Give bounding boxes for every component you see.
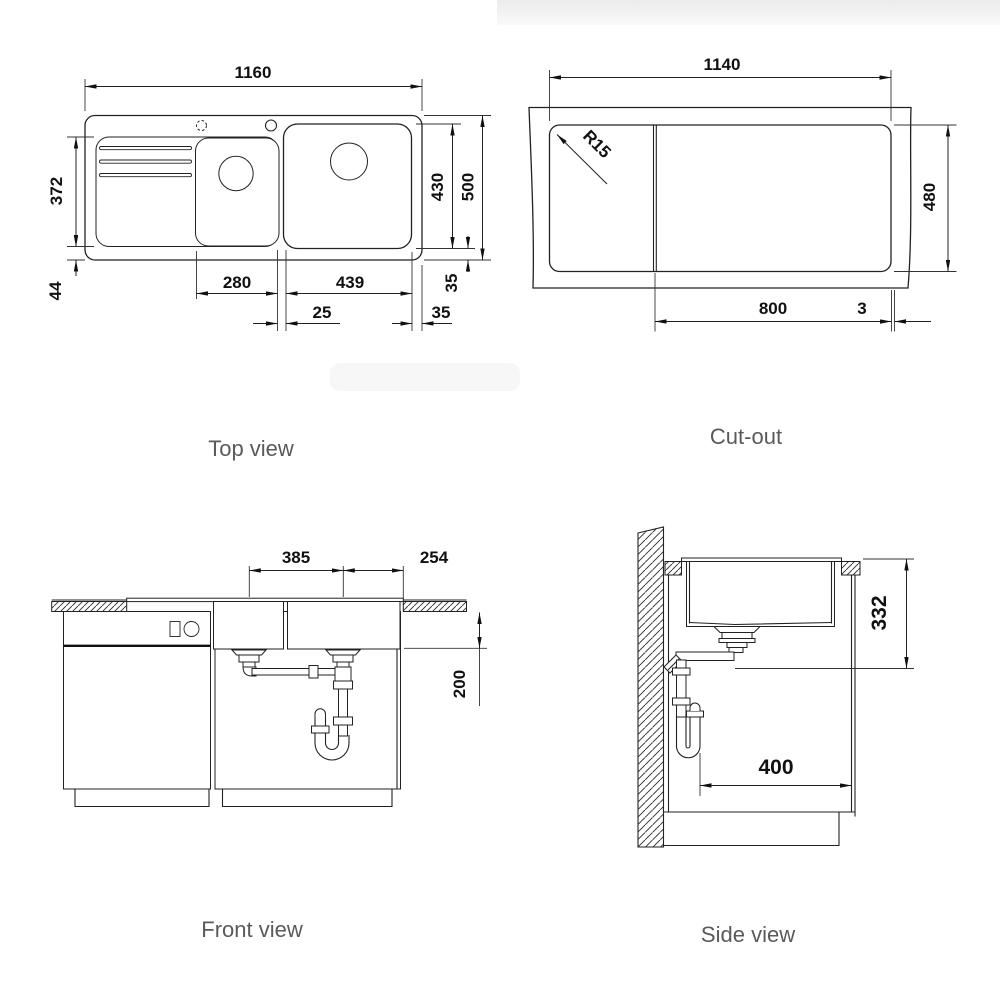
wall-section xyxy=(638,527,664,847)
scan-gray-band xyxy=(497,0,1000,25)
dim-cutout-width: 1140 xyxy=(704,55,741,74)
left-cabinet-plinth xyxy=(75,789,209,807)
side-view: 332 400 Side view xyxy=(638,527,914,947)
front-drawing xyxy=(52,598,467,806)
dim-rim-offset-horizontal: 35 xyxy=(432,303,451,322)
dim-rim-offset-vertical: 35 xyxy=(442,274,461,293)
left-cabinet xyxy=(64,612,211,790)
dim-min-cabinet-depth: 400 xyxy=(758,756,793,779)
cutout-caption: Cut-out xyxy=(710,424,782,449)
front-view: 385 254 200 Front view xyxy=(52,548,487,942)
small-bowl xyxy=(196,138,280,246)
dim-drain-to-right-edge: 254 xyxy=(420,548,449,567)
sink-rim-side xyxy=(682,558,842,562)
dim-outlet-height: 332 xyxy=(868,595,891,630)
side-view-caption: Side view xyxy=(701,922,795,947)
front-view-caption: Front view xyxy=(201,917,303,942)
dim-cutout-depth: 480 xyxy=(920,183,939,211)
dim-overall-width: 1160 xyxy=(235,63,272,82)
dim-edge-gap: 3 xyxy=(857,299,866,318)
dim-bowl-depth: 200 xyxy=(450,670,469,698)
large-bowl-front xyxy=(288,602,401,650)
dim-drainer-depth: 372 xyxy=(47,177,66,205)
tap-hole xyxy=(266,120,277,131)
dim-large-bowl-width: 439 xyxy=(336,273,364,292)
dim-bowl-gap: 25 xyxy=(313,303,332,322)
dim-drainer-bottom-offset: 44 xyxy=(46,281,65,300)
cabinet-plinth-side xyxy=(664,812,840,846)
dim-drain-spacing: 385 xyxy=(282,548,310,567)
top-view-caption: Top view xyxy=(208,436,294,461)
large-bowl-drain xyxy=(331,143,368,180)
counter-section-right xyxy=(403,602,466,612)
waste-plumbing-side xyxy=(664,627,760,758)
bowl-section xyxy=(687,562,835,627)
counter-stub-right xyxy=(842,562,861,576)
drawing-canvas: 1160 372 44 430 500 35 xyxy=(0,0,1000,1000)
small-bowl-front xyxy=(214,602,284,650)
dim-min-cabinet-width: 800 xyxy=(759,299,787,318)
dim-small-bowl-width: 280 xyxy=(223,273,251,292)
dim-large-bowl-depth: 430 xyxy=(428,173,447,201)
scan-smudge xyxy=(330,363,520,391)
sink-cabinet-plinth xyxy=(223,789,393,807)
counter-stub-left xyxy=(665,562,682,576)
control-rect-icon xyxy=(170,622,180,637)
cutout-view: R15 1140 480 800 3 Cut-out xyxy=(529,55,957,449)
cutout-drawing: R15 xyxy=(529,108,911,289)
dim-overall-depth: 500 xyxy=(459,173,478,201)
small-bowl-drain xyxy=(219,156,253,190)
counter-section-left xyxy=(52,602,127,612)
top-view-drawing xyxy=(85,116,422,261)
side-drawing xyxy=(638,527,860,847)
control-knob-icon xyxy=(184,622,199,637)
top-view: 1160 372 44 430 500 35 xyxy=(46,63,491,461)
technical-drawing-sheet: 1160 372 44 430 500 35 xyxy=(0,0,1000,1000)
